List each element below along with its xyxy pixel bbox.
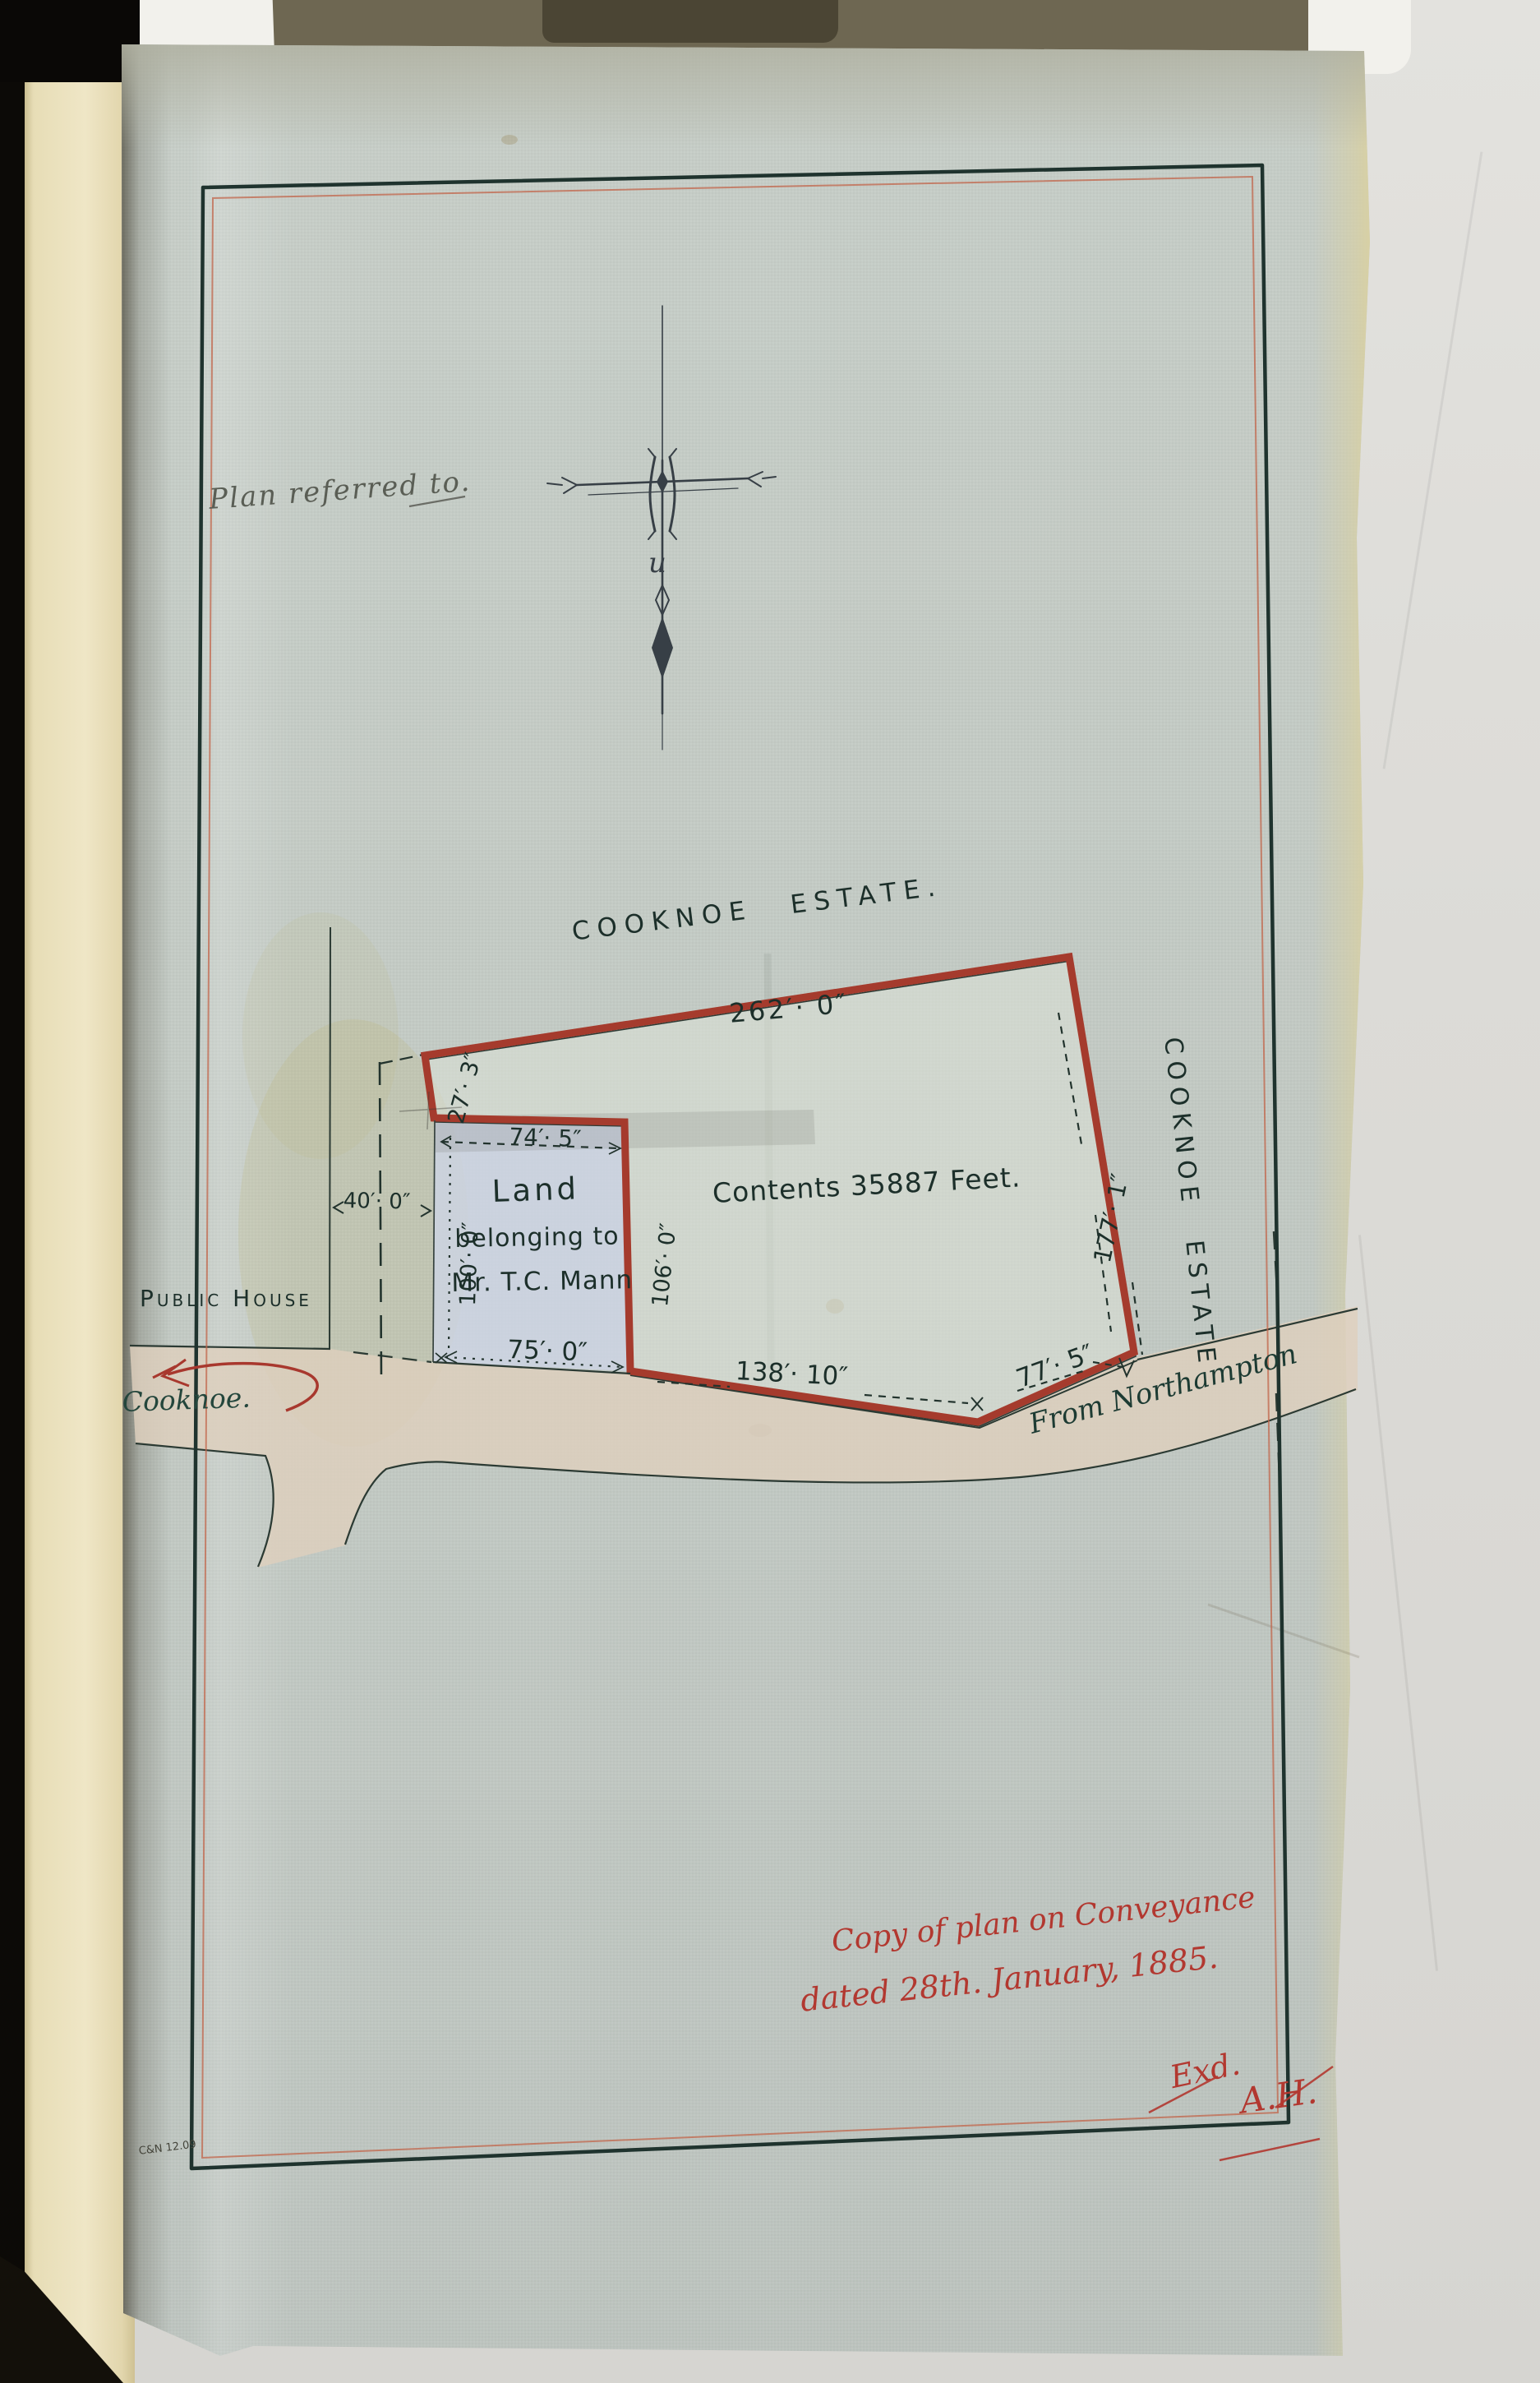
page-stain xyxy=(501,135,518,145)
dim-west-gap: 40′· 0″ xyxy=(343,1189,410,1214)
public-house-label: Public House xyxy=(140,1285,312,1312)
svg-text:u: u xyxy=(648,547,666,580)
road-label-west: Cooknoe. xyxy=(122,1382,251,1418)
dim-parcel-north: 74′· 5″ xyxy=(509,1123,582,1152)
dim-south-boundary: 138′· 10″ xyxy=(735,1356,849,1392)
page-stain xyxy=(242,912,399,1159)
parcel-label-line1: Land xyxy=(491,1171,580,1209)
dim-parcel-south: 75′· 0″ xyxy=(507,1335,588,1367)
north-compass-icon: u xyxy=(547,306,776,750)
public-house-boundary xyxy=(330,927,330,1349)
scanned-book-photograph: u Plan referred to. Cooknoe Estate. 262′… xyxy=(0,0,1540,2383)
dim-parcel-west: 100′· 0″ xyxy=(455,1222,484,1306)
